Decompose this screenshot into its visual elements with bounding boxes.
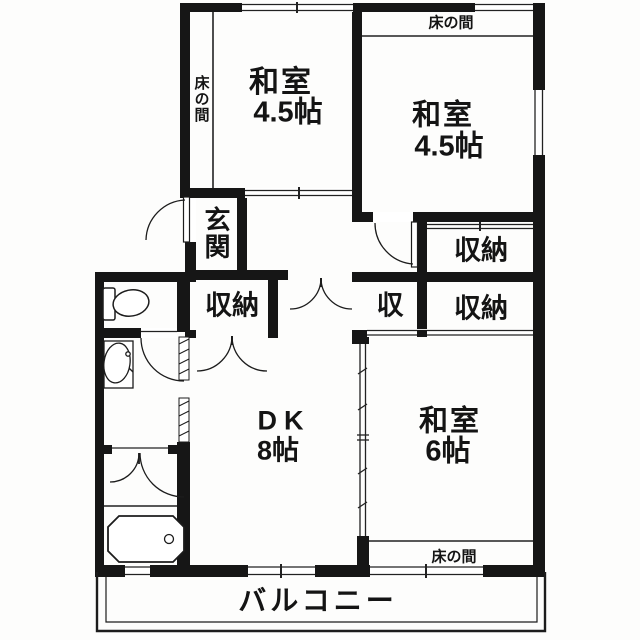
- wall-bath-post-left: [95, 445, 112, 454]
- room-nw-name: 和室: [249, 68, 313, 98]
- wall-hallcloset-right: [268, 272, 278, 336]
- floorplan-page: 床の間 和室 4.5帖 床の間 和室 4.5帖 玄関 収納 収納 収 収納 DK…: [0, 0, 640, 640]
- bathroom-doors: [110, 453, 184, 497]
- wall-nw-left: [180, 3, 190, 198]
- mid-closet-label: 収: [377, 293, 404, 320]
- wall-entrance-right: [237, 188, 247, 278]
- slider-closet-row: [367, 329, 533, 337]
- room-se-name: 和室: [419, 408, 481, 437]
- windows-and-sliders: [104, 2, 545, 578]
- fixtures: [97, 287, 545, 631]
- dk-size: 8帖: [257, 438, 299, 465]
- tokonoma-label-se: 床の間: [431, 550, 476, 565]
- toilet-icon: [103, 287, 151, 320]
- tokonoma-label-nw: 床の間: [194, 75, 209, 123]
- window-bath-bottom: [125, 565, 150, 577]
- washroom-door: [141, 338, 184, 381]
- tokonoma-label-ne: 床の間: [428, 16, 473, 31]
- gap-toilet-door: [141, 328, 177, 338]
- wall-right: [533, 3, 545, 573]
- wall-slider-bottom-post: [357, 536, 369, 577]
- room-ne-size: 4.5帖: [414, 133, 483, 162]
- wall-midcloset-top: [352, 272, 425, 282]
- se-closet-label: 収納: [454, 296, 508, 323]
- wall-bath-post-right: [168, 445, 190, 454]
- ne-closet-label: 収納: [454, 238, 508, 265]
- slider-nw-room: [245, 187, 352, 199]
- hall-dk-double-door: [290, 278, 352, 309]
- washroom-slider-strips: [179, 337, 189, 442]
- entrance-label: 玄関: [203, 206, 229, 260]
- room-ne-name: 和室: [412, 102, 474, 131]
- hall-closet-doors: [197, 336, 267, 371]
- bathtub-icon: [108, 516, 184, 562]
- room-se-size: 6帖: [425, 438, 470, 467]
- window-ne-right: [533, 90, 545, 155]
- entrance-door: [146, 197, 190, 242]
- slider-dk-se: [357, 344, 369, 536]
- wall-column-right-upper: [177, 272, 190, 332]
- slider-row-post: [417, 330, 427, 337]
- gap-ne-door: [373, 212, 413, 222]
- sink-icon: [101, 341, 133, 388]
- balcony-label: バルコニー: [238, 587, 397, 615]
- window-nw-top: [242, 2, 353, 13]
- window-dk-bottom: [248, 564, 315, 578]
- wall-toilet-bottom: [95, 328, 141, 338]
- wall-closet-row-top: [417, 272, 533, 282]
- room-nw-size: 4.5帖: [253, 99, 322, 128]
- window-se-bottom: [370, 564, 483, 578]
- wall-hallcloset-post-right: [268, 330, 278, 338]
- window-ne-top: [475, 3, 533, 12]
- dk-name: DK: [258, 408, 311, 435]
- slider-ne-closet: [427, 222, 533, 231]
- hall-closet-label: 収納: [205, 293, 259, 320]
- ne-room-door: [375, 222, 418, 267]
